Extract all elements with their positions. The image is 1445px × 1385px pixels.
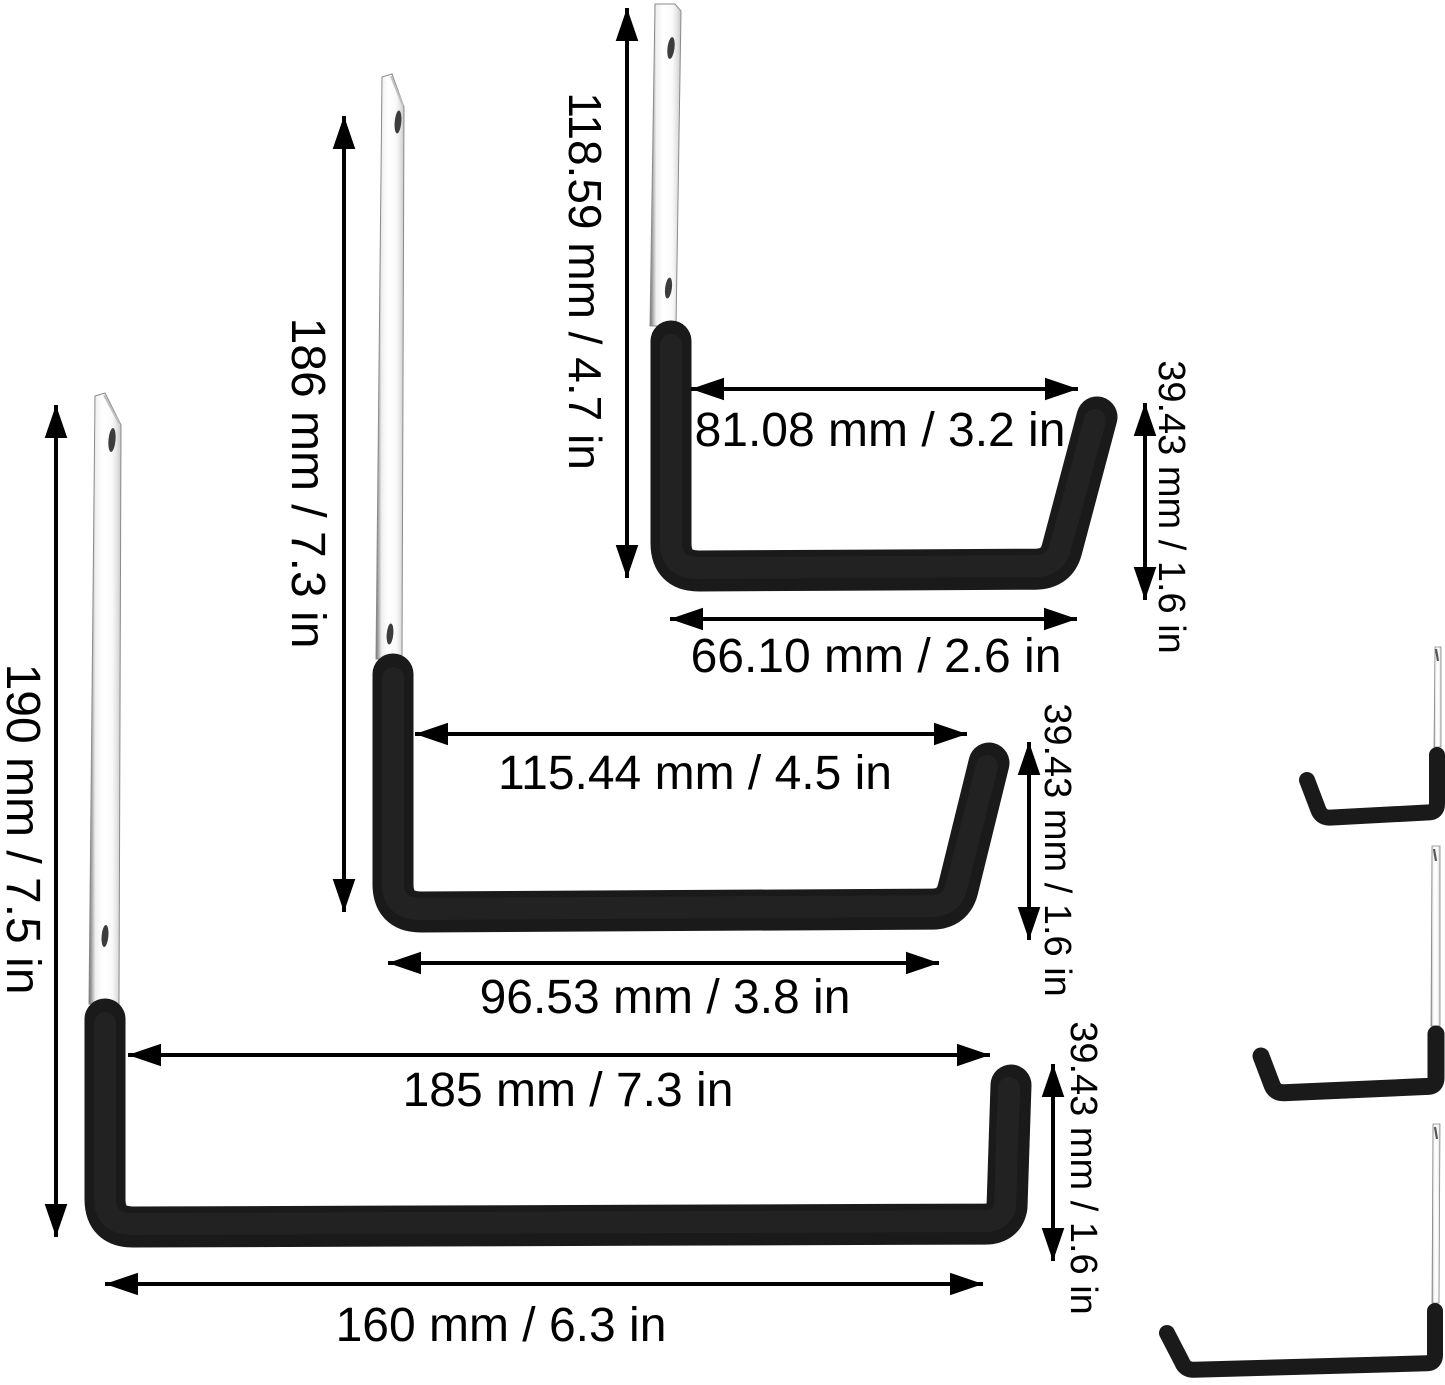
svg-text:96.53 mm / 3.8 in: 96.53 mm / 3.8 in <box>480 971 851 1024</box>
svg-text:39.43 mm / 1.6 in: 39.43 mm / 1.6 in <box>1062 1021 1104 1315</box>
svg-text:160 mm / 6.3 in: 160 mm / 6.3 in <box>336 1299 667 1352</box>
svg-text:190 mm / 7.5 in: 190 mm / 7.5 in <box>0 664 49 995</box>
svg-text:39.43 mm / 1.6 in: 39.43 mm / 1.6 in <box>1036 703 1078 997</box>
svg-text:185 mm / 7.3 in: 185 mm / 7.3 in <box>403 1064 734 1117</box>
svg-text:81.08 mm / 3.2 in: 81.08 mm / 3.2 in <box>695 404 1066 457</box>
svg-text:115.44 mm / 4.5 in: 115.44 mm / 4.5 in <box>498 747 892 800</box>
svg-text:118.59 mm / 4.7 in: 118.59 mm / 4.7 in <box>559 92 611 470</box>
svg-text:39.43 mm / 1.6 in: 39.43 mm / 1.6 in <box>1150 360 1192 654</box>
svg-text:186 mm / 7.3 in: 186 mm / 7.3 in <box>281 318 334 649</box>
svg-text:66.10 mm / 2.6 in: 66.10 mm / 2.6 in <box>691 630 1062 683</box>
